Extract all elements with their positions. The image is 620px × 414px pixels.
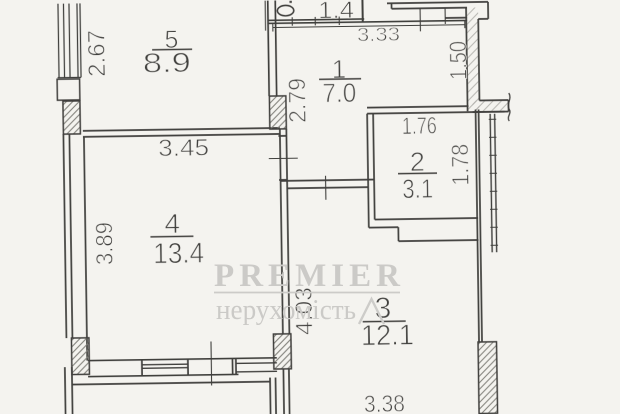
svg-text:1.76: 1.76 bbox=[402, 113, 437, 141]
svg-text:3.1: 3.1 bbox=[402, 174, 433, 204]
svg-text:3.89: 3.89 bbox=[91, 222, 119, 265]
svg-text:1.78: 1.78 bbox=[447, 144, 475, 186]
svg-text:3.45: 3.45 bbox=[158, 134, 209, 162]
svg-text:8.9: 8.9 bbox=[143, 47, 191, 79]
svg-text:PREMIER: PREMIER bbox=[214, 258, 401, 294]
svg-text:нерухомість: нерухомість bbox=[216, 295, 356, 326]
svg-text:1.4: 1.4 bbox=[318, 0, 354, 24]
svg-text:13.4: 13.4 bbox=[153, 238, 204, 271]
svg-text:2.67: 2.67 bbox=[83, 30, 111, 77]
svg-text:3.33: 3.33 bbox=[357, 24, 400, 47]
svg-text:2: 2 bbox=[410, 147, 425, 177]
svg-text:12.1: 12.1 bbox=[361, 319, 414, 352]
svg-text:2.79: 2.79 bbox=[284, 78, 312, 123]
svg-text:3.38: 3.38 bbox=[364, 391, 405, 414]
svg-text:4: 4 bbox=[164, 208, 180, 239]
svg-text:7.0: 7.0 bbox=[322, 78, 356, 109]
svg-text:1.50: 1.50 bbox=[445, 41, 473, 80]
